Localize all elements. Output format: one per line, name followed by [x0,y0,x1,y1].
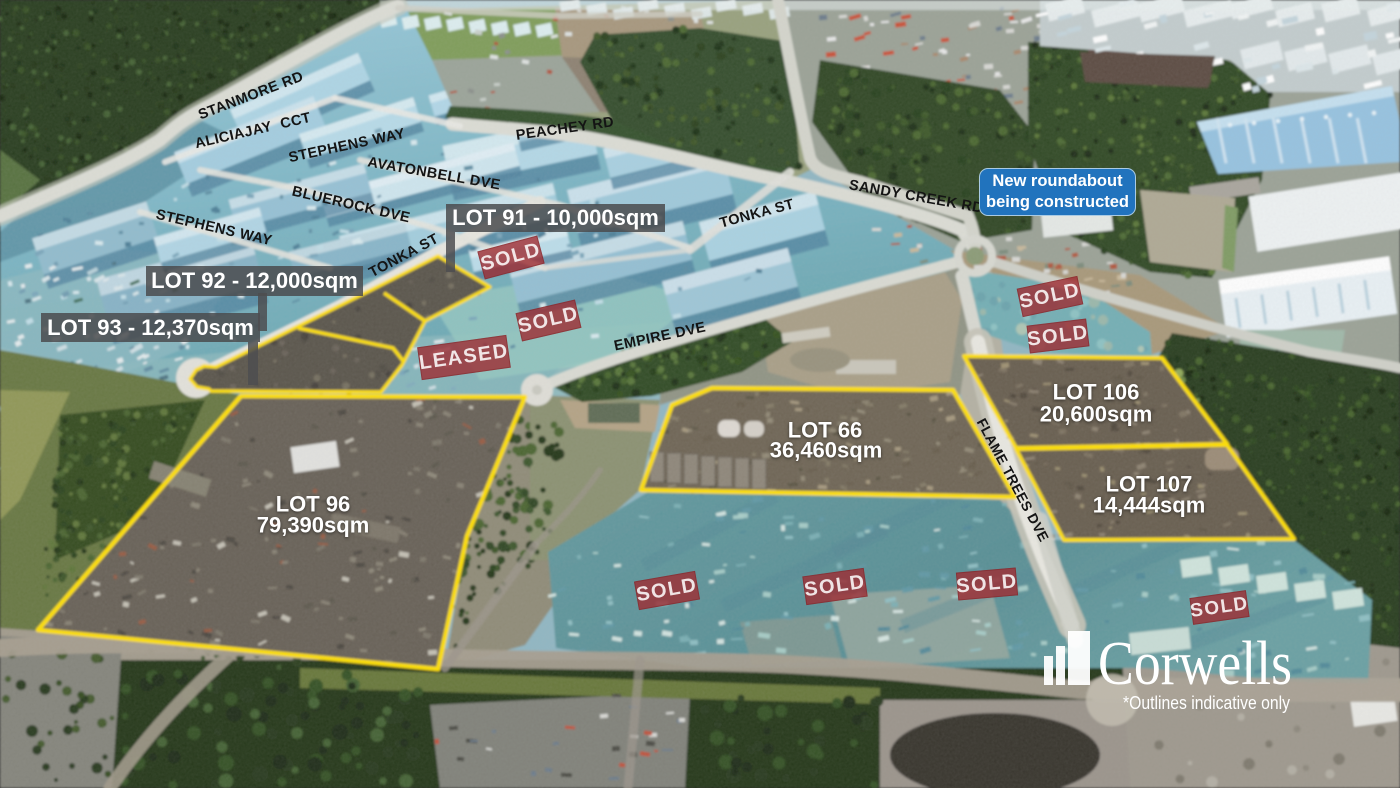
svg-text:*Outlines indicative only: *Outlines indicative only [1123,693,1290,713]
svg-text:Corwells: Corwells [1098,630,1292,698]
